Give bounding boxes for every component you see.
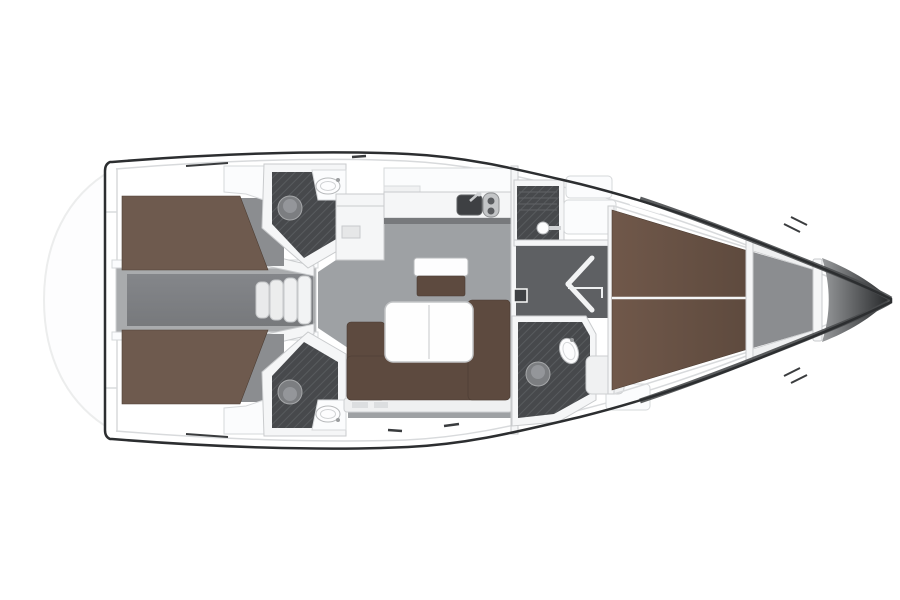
- deck-cleat: [388, 430, 402, 431]
- sofa-right-arm: [468, 300, 510, 400]
- faucet-aft-port: [336, 178, 340, 182]
- passage-panel: [514, 289, 527, 302]
- passage-floor: [516, 246, 612, 318]
- toilet-aft-starboard-seat: [283, 387, 297, 401]
- anchor-bulkhead: [813, 259, 822, 341]
- bow-hatch-slit: [784, 368, 800, 376]
- toilet-forward-seat: [531, 365, 545, 379]
- vberth-foot-bulkhead: [746, 240, 753, 360]
- stove-burner: [488, 198, 495, 205]
- faucet-aft-starboard: [336, 418, 340, 422]
- bow-hatch-slit: [791, 375, 807, 383]
- sofa-front-drawer: [352, 402, 368, 408]
- toilet-aft-port-seat: [283, 199, 297, 213]
- companionway-step: [256, 282, 269, 318]
- shower-forward: [514, 180, 564, 246]
- faucet-forward: [570, 338, 574, 342]
- deck-cleat: [352, 156, 366, 157]
- salon: [318, 194, 514, 418]
- bow-hatch-slit: [791, 217, 807, 225]
- shower-head: [537, 222, 549, 234]
- stove-burner: [488, 208, 495, 215]
- passage-wall-top: [514, 240, 612, 246]
- bow-section: [746, 240, 890, 360]
- forward-passage: [514, 240, 612, 318]
- companionway-step: [298, 276, 311, 324]
- galley: [384, 168, 514, 224]
- galley-counter-edge: [384, 218, 514, 224]
- nav-bench-top: [414, 258, 468, 276]
- swim-platform: [44, 170, 112, 430]
- sofa-front-drawer: [374, 402, 388, 408]
- yacht-floor-plan: [0, 0, 900, 600]
- nav-bench-cushion: [417, 276, 465, 296]
- companionway-step: [270, 280, 283, 320]
- companionway-step: [284, 278, 297, 322]
- galley-faucet-base: [477, 192, 482, 197]
- galley-sink: [457, 195, 482, 215]
- galley-aft-cabinet-box: [342, 226, 360, 238]
- bow-hatch-slit: [784, 224, 800, 232]
